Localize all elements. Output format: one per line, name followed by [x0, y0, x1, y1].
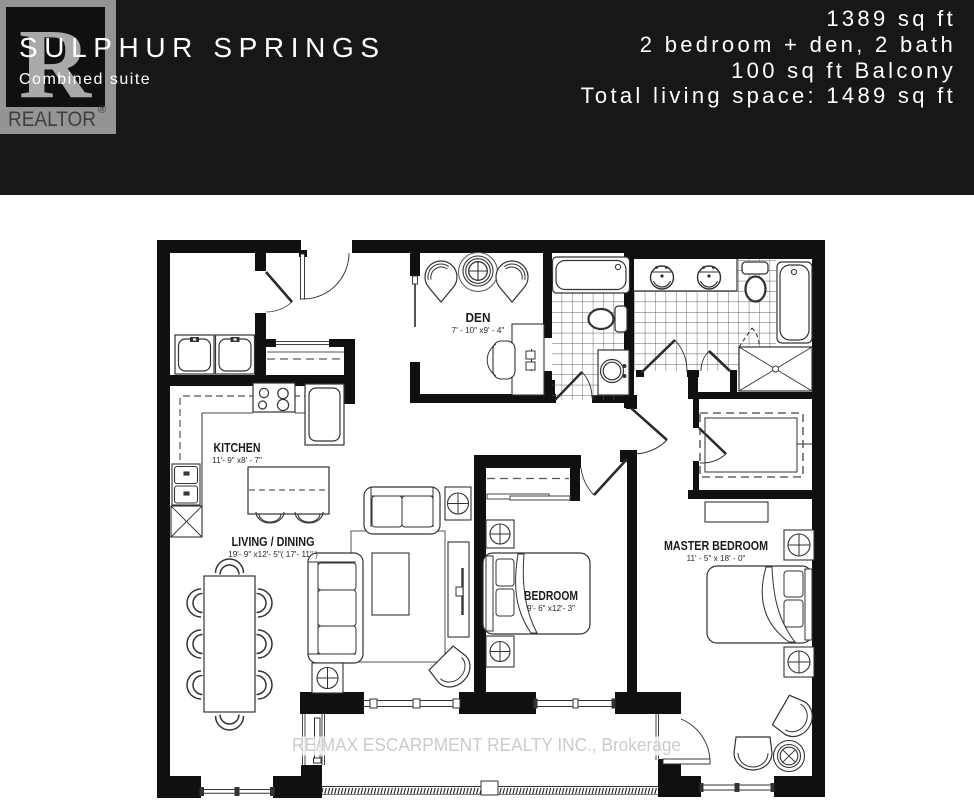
- svg-text:100 sq ft Balcony: 100 sq ft Balcony: [731, 58, 956, 83]
- svg-text:®: ®: [98, 104, 106, 116]
- svg-text:REALTOR: REALTOR: [8, 107, 96, 131]
- svg-text:MASTER BEDROOM: MASTER BEDROOM: [664, 539, 768, 553]
- svg-text:19'- 9" x12'- 5"( 17'- 11" ): 19'- 9" x12'- 5"( 17'- 11" ): [228, 550, 318, 559]
- svg-text:DEN: DEN: [466, 311, 491, 325]
- svg-text:RE/MAX ESCARPMENT REALTY INC.,: RE/MAX ESCARPMENT REALTY INC., Brokerage: [292, 734, 681, 755]
- svg-text:KITCHEN: KITCHEN: [214, 441, 261, 455]
- svg-text:11' - 5" x 18' - 0": 11' - 5" x 18' - 0": [687, 554, 746, 563]
- svg-text:11'- 9" x8' - 7": 11'- 9" x8' - 7": [212, 456, 262, 465]
- svg-text:SULPHUR SPRINGS: SULPHUR SPRINGS: [19, 32, 386, 63]
- svg-text:LIVING / DINING: LIVING / DINING: [232, 535, 315, 549]
- svg-text:2 bedroom + den, 2 bath: 2 bedroom + den, 2 bath: [640, 32, 956, 57]
- svg-text:R: R: [19, 8, 93, 119]
- svg-text:Total living space: 1489 sq ft: Total living space: 1489 sq ft: [581, 83, 956, 108]
- svg-text:7' - 10" x9' - 4": 7' - 10" x9' - 4": [452, 326, 505, 335]
- svg-text:1389 sq ft: 1389 sq ft: [826, 6, 956, 31]
- svg-text:BEDROOM: BEDROOM: [524, 589, 578, 603]
- svg-text:9'- 6" x12'- 3": 9'- 6" x12'- 3": [527, 604, 575, 613]
- svg-text:Combined suite: Combined suite: [19, 71, 151, 88]
